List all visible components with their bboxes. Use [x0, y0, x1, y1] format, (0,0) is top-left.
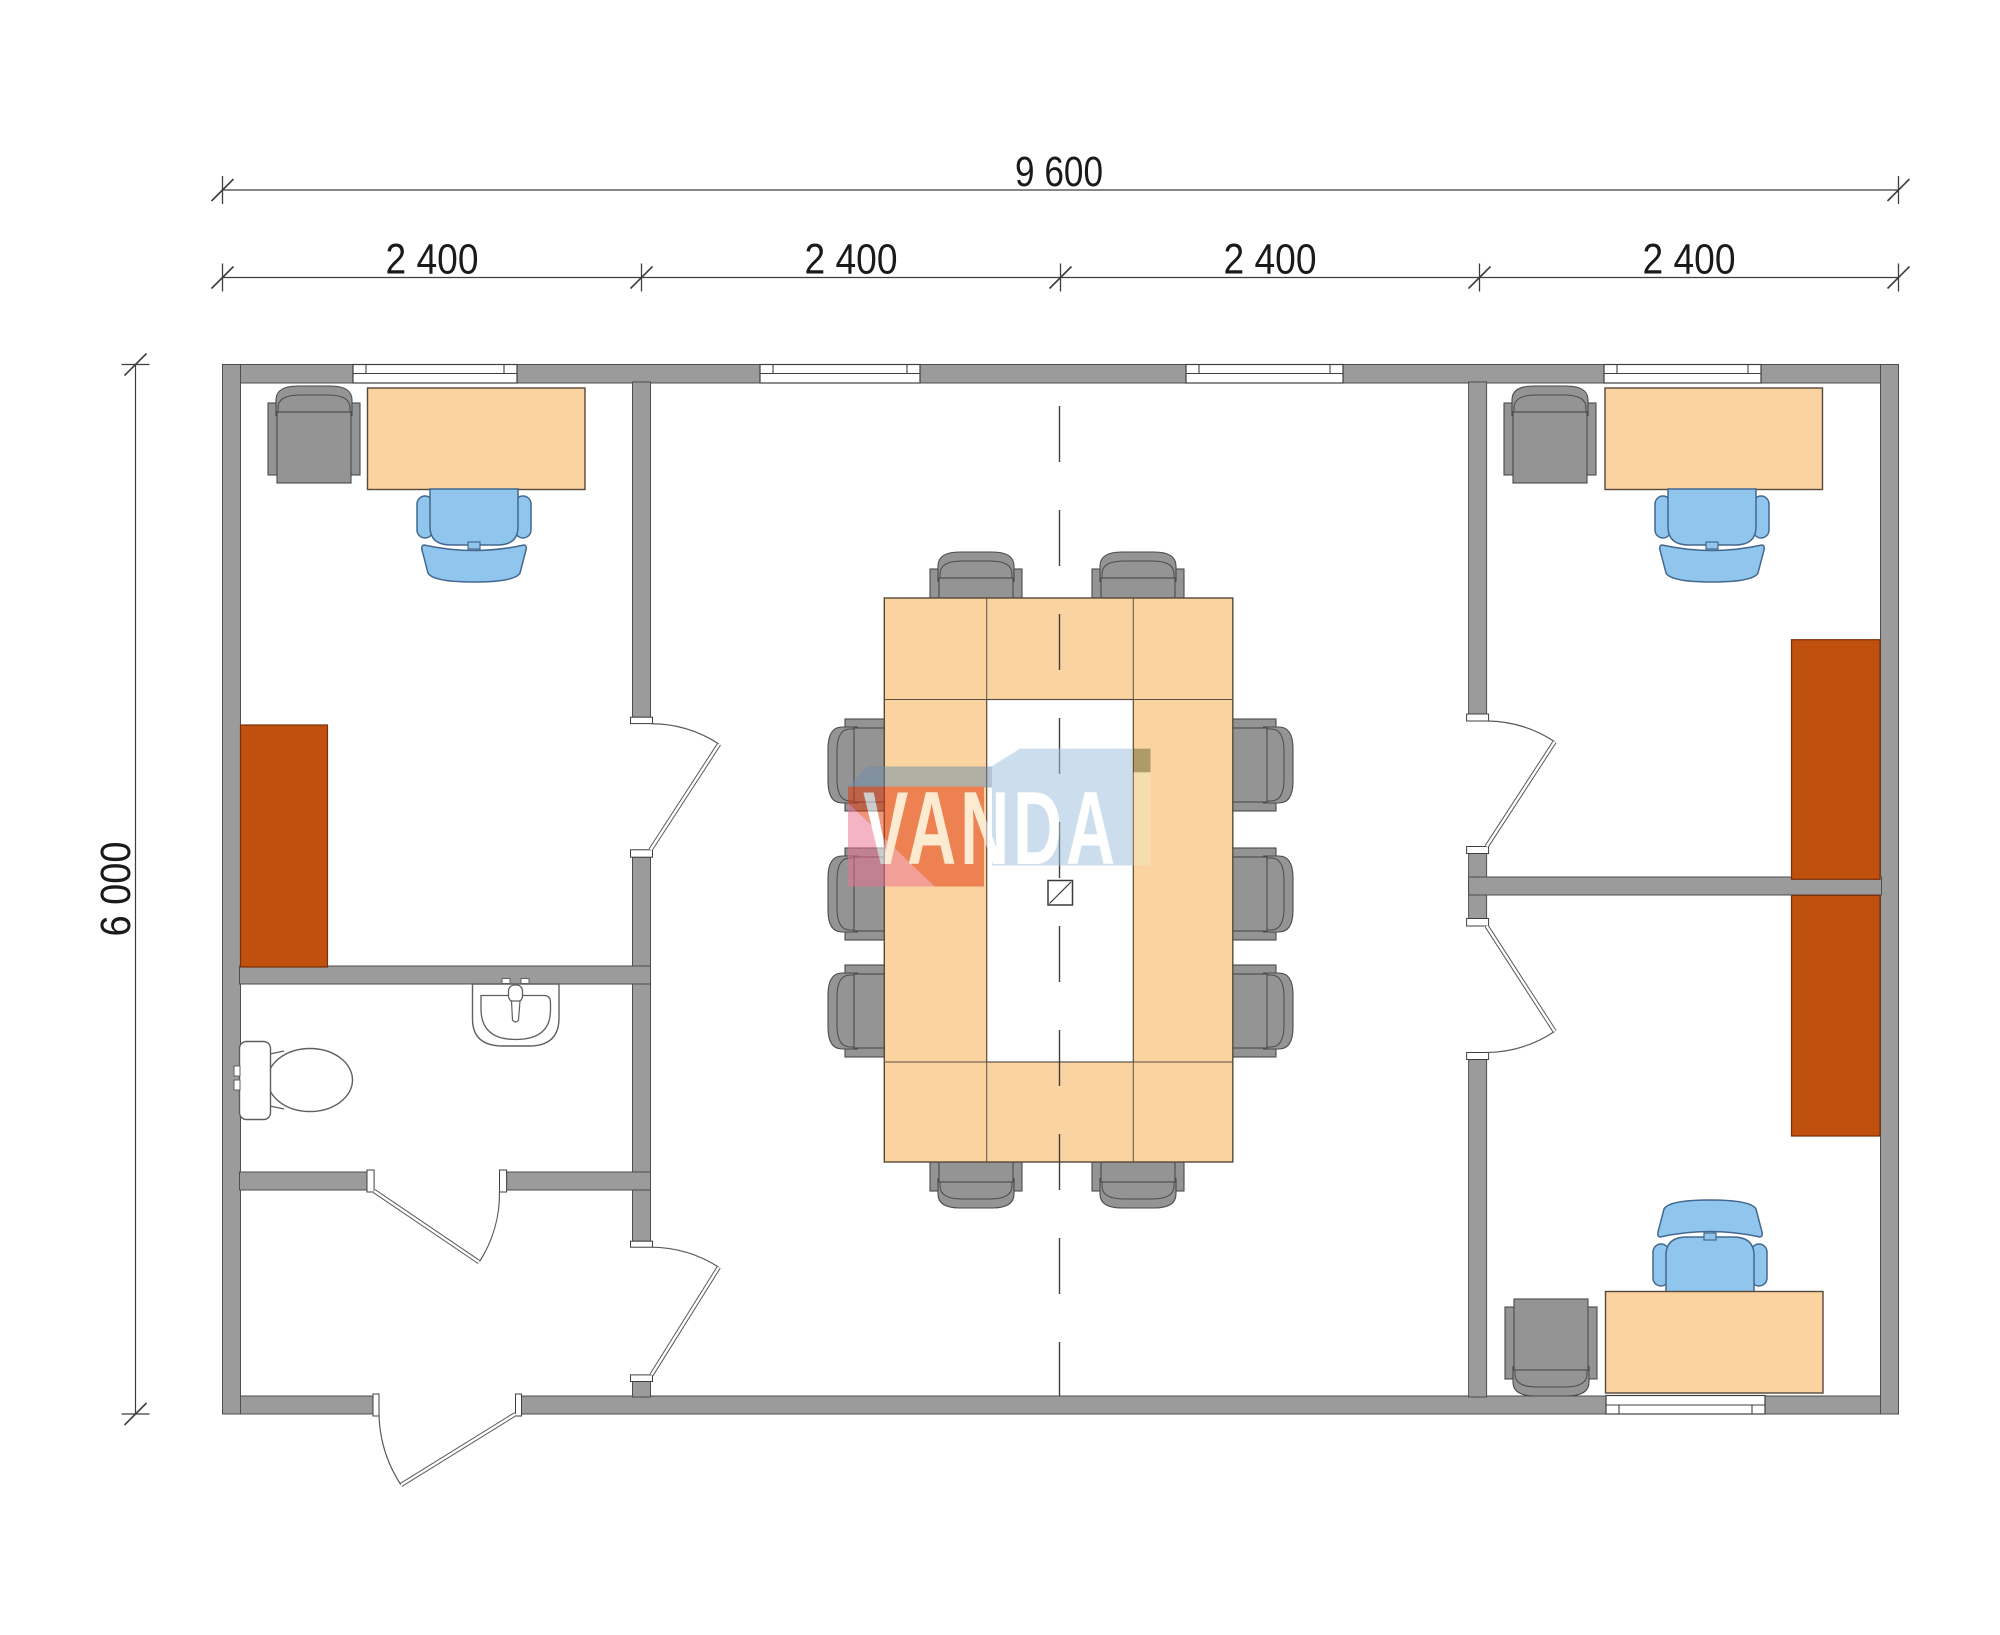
svg-text:VANDA: VANDA	[863, 769, 1119, 886]
svg-text:2 400: 2 400	[1224, 236, 1317, 284]
svg-text:2 400: 2 400	[386, 236, 479, 284]
svg-text:9 600: 9 600	[1015, 148, 1103, 196]
svg-text:2 400: 2 400	[805, 236, 898, 284]
svg-text:2 400: 2 400	[1643, 236, 1736, 284]
svg-text:6 000: 6 000	[92, 842, 140, 937]
